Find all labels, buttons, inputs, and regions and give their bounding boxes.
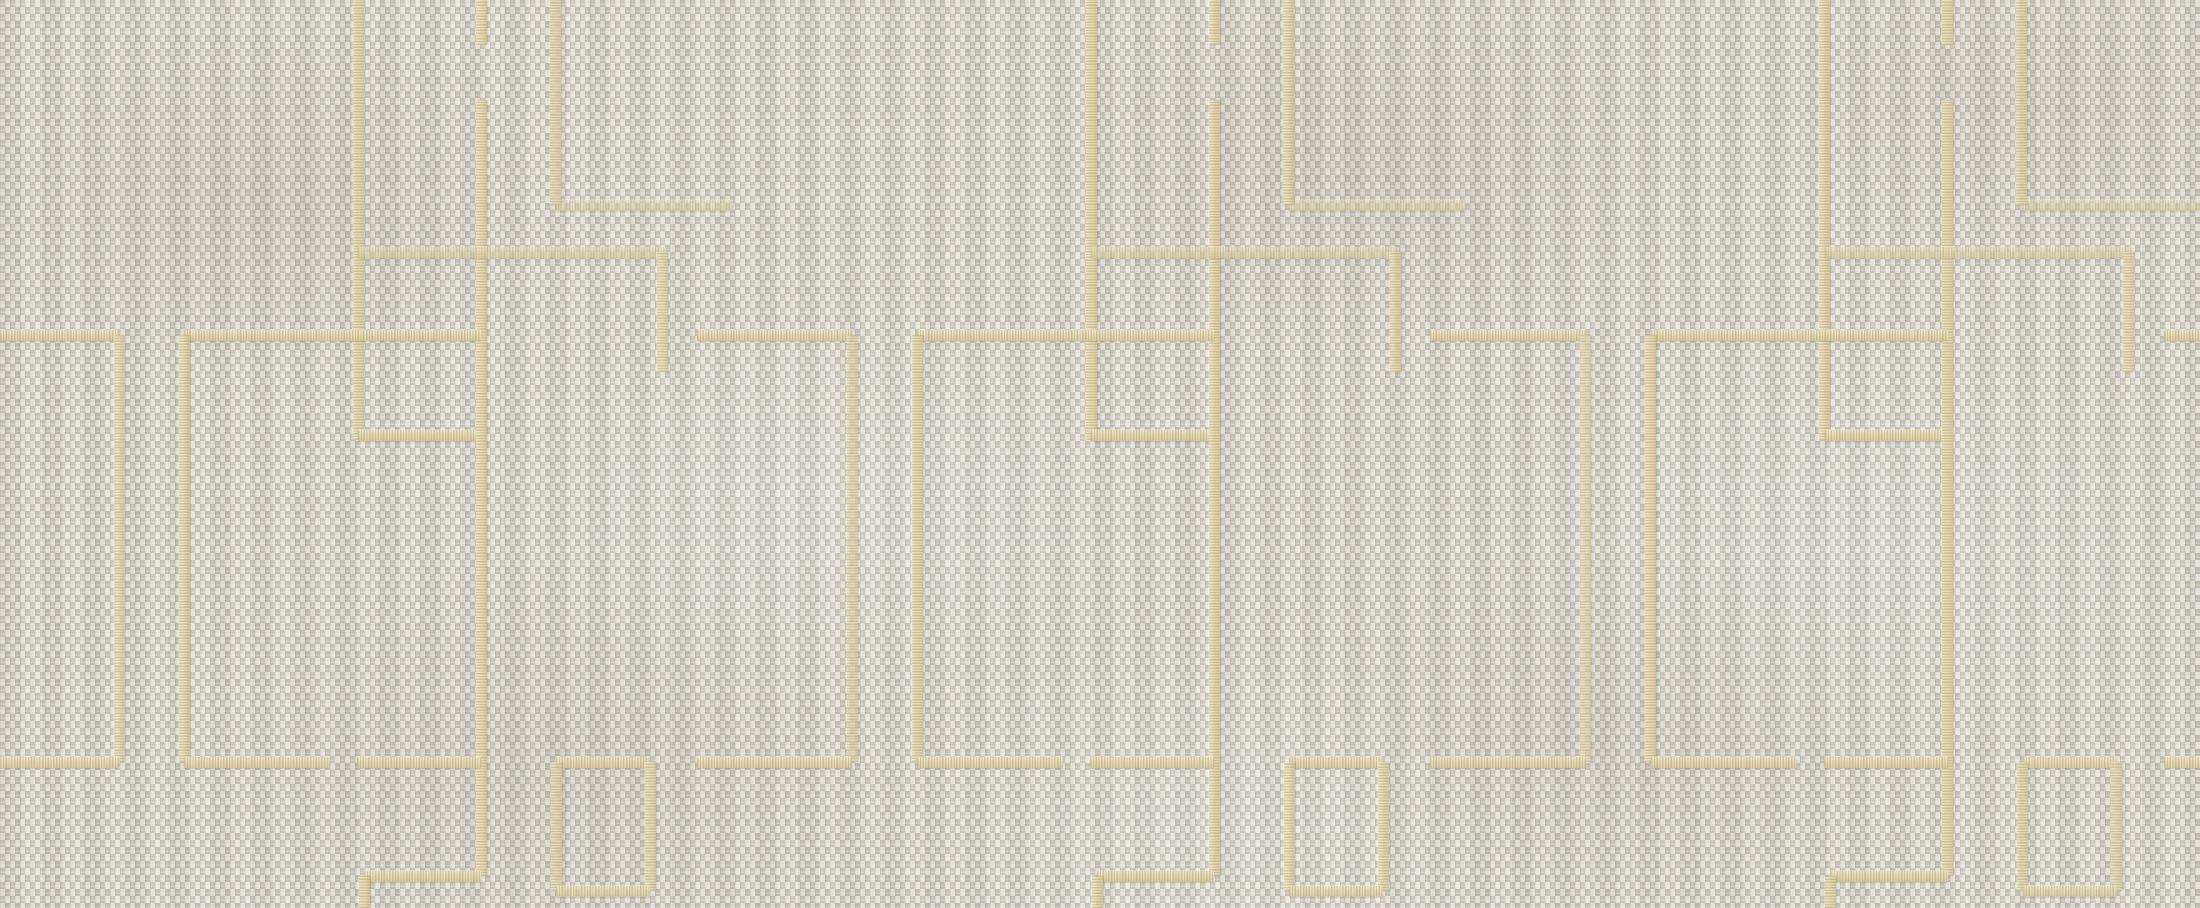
fret-line-horizontal-segment (2023, 757, 2117, 768)
fret-line-vertical-segment (114, 335, 125, 762)
fret-line-vertical-segment (1378, 762, 1389, 891)
fret-line-horizontal-segment (1091, 430, 1214, 441)
fret-line-horizontal-segment (1430, 330, 1467, 341)
fret-line-vertical-segment (1284, 762, 1295, 891)
fret-line-vertical-segment (1209, 0, 1220, 45)
fret-line-horizontal-segment (364, 871, 481, 882)
fret-line-horizontal-segment (1097, 871, 1214, 882)
fret-line-horizontal-segment (357, 757, 481, 768)
fret-line-vertical-segment (1092, 876, 1103, 908)
fret-line-horizontal-segment (555, 200, 733, 211)
fret-line-vertical-segment (657, 252, 668, 372)
fret-line-vertical-segment (359, 876, 370, 908)
fret-line-horizontal-segment (358, 247, 666, 258)
fret-line-vertical-segment (1390, 252, 1401, 372)
fret-line-horizontal-segment (184, 757, 330, 768)
fret-line-horizontal-segment (1091, 247, 1399, 258)
fret-line-horizontal-segment (2023, 886, 2117, 897)
fret-line-horizontal-segment (697, 330, 734, 341)
fret-line-horizontal-segment (556, 886, 650, 897)
fret-line-vertical-segment (353, 0, 364, 440)
fret-line-vertical-segment (1580, 335, 1591, 762)
fret-line-horizontal-segment (917, 757, 1063, 768)
fret-line-vertical-segment (1819, 0, 1830, 440)
fret-line-vertical-segment (1645, 335, 1656, 762)
fret-line-horizontal-segment (1824, 757, 1948, 768)
fret-line-horizontal-segment (1651, 757, 1797, 768)
fret-line-horizontal-segment (1289, 757, 1383, 768)
fabric-wallpaper-texture (0, 0, 2200, 908)
fret-line-horizontal-segment (556, 757, 650, 768)
fret-line-vertical-segment (1942, 0, 1953, 45)
fret-line-horizontal-segment (1288, 200, 1466, 211)
fret-line-horizontal-segment (1467, 330, 1586, 341)
fret-line-horizontal-segment (1289, 886, 1383, 897)
fret-line-horizontal-segment (697, 757, 734, 768)
fret-line-vertical-segment (847, 335, 858, 762)
fret-line-vertical-segment (476, 0, 487, 45)
fret-line-vertical-segment (1086, 0, 1097, 440)
fret-line-horizontal-segment (1430, 757, 1467, 768)
fret-line-horizontal-segment (358, 430, 481, 441)
fret-line-horizontal-segment (0, 330, 119, 341)
fret-line-horizontal-segment (1467, 757, 1586, 768)
fret-line-horizontal-segment (2164, 330, 2200, 341)
fret-line-horizontal-segment (917, 330, 1214, 341)
fret-line-vertical-segment (2123, 252, 2134, 372)
fret-line-horizontal-segment (1090, 757, 1214, 768)
fret-line-vertical-segment (645, 762, 656, 891)
fret-line-horizontal-segment (2022, 200, 2200, 211)
fret-line-vertical-segment (179, 335, 190, 762)
fret-line-vertical-segment (912, 335, 923, 762)
fret-line-vertical-segment (2016, 0, 2027, 205)
fret-line-vertical-segment (2111, 762, 2122, 891)
fret-line-horizontal-segment (2164, 757, 2200, 768)
fret-line-horizontal-segment (1831, 871, 1948, 882)
fret-line-vertical-segment (1283, 0, 1294, 205)
fret-line-vertical-segment (1825, 876, 1836, 908)
fret-line-horizontal-segment (733, 757, 852, 768)
fret-line-horizontal-segment (184, 330, 481, 341)
fret-line-horizontal-segment (1825, 247, 2133, 258)
fret-line-vertical-segment (550, 0, 561, 205)
fret-line-horizontal-segment (1651, 330, 1948, 341)
fret-line-horizontal-segment (733, 330, 852, 341)
fret-line-vertical-segment (2017, 762, 2028, 891)
fret-line-vertical-segment (551, 762, 562, 891)
fret-line-horizontal-segment (0, 757, 119, 768)
fret-line-horizontal-segment (1825, 430, 1948, 441)
